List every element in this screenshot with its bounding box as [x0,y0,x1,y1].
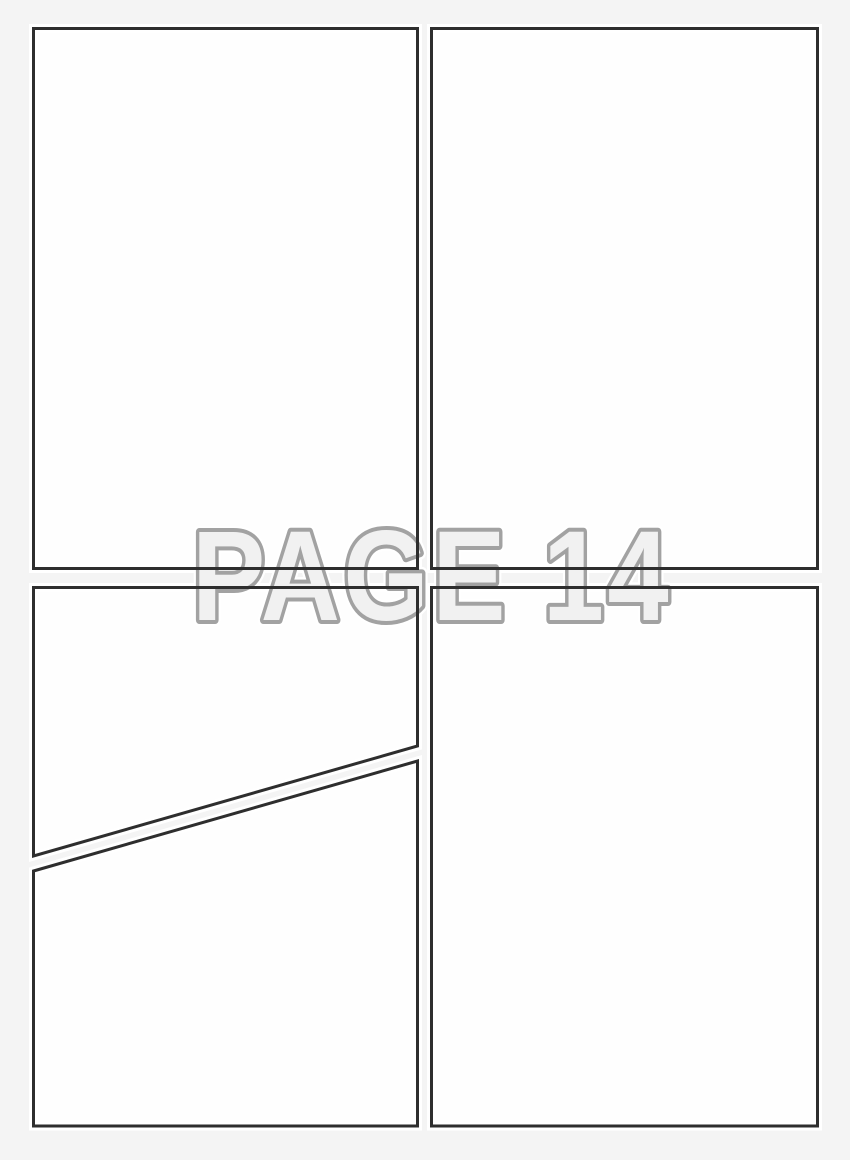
panel-top-left-border [34,29,418,569]
panel-top-right-border [432,29,818,569]
comic-page-template: PAGE 14 PAGE 14 [0,0,850,1160]
panel-bottom-left-diagonal-lower-border [34,761,418,1126]
panel-bottom-right-border [432,588,818,1127]
panel-borders-layer [0,0,850,1160]
